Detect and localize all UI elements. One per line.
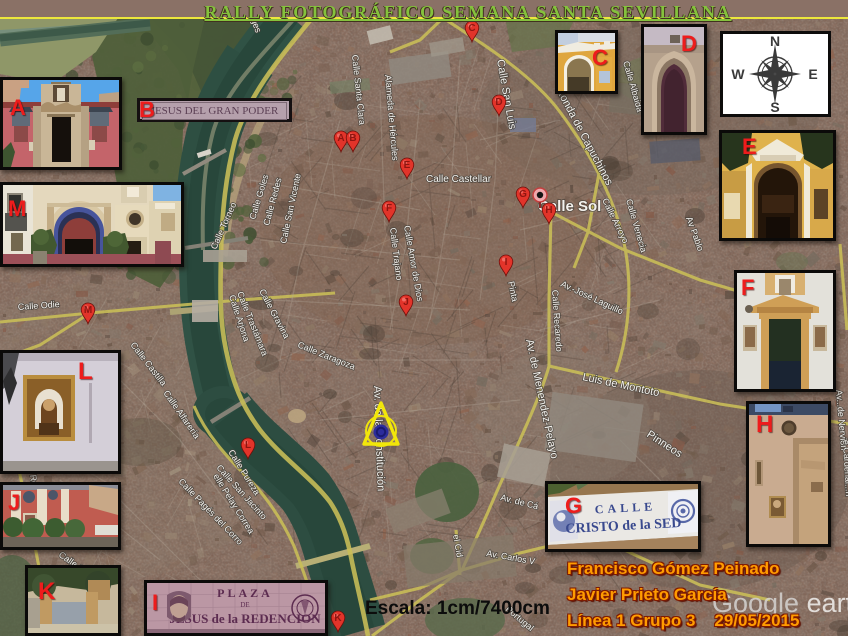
svg-text:E: E bbox=[404, 160, 411, 171]
svg-text:W: W bbox=[731, 66, 745, 82]
svg-text:DE: DE bbox=[240, 601, 249, 609]
svg-text:G: G bbox=[519, 189, 527, 200]
svg-text:PLAZA: PLAZA bbox=[217, 586, 273, 600]
svg-text:C: C bbox=[468, 23, 475, 34]
svg-text:L: L bbox=[245, 440, 251, 451]
svg-text:D: D bbox=[495, 97, 502, 108]
svg-text:M: M bbox=[84, 305, 92, 316]
svg-text:A: A bbox=[337, 133, 344, 144]
svg-text:S: S bbox=[770, 99, 779, 114]
svg-text:H: H bbox=[545, 205, 552, 216]
svg-text:F: F bbox=[386, 203, 392, 214]
svg-text:N: N bbox=[770, 34, 780, 49]
svg-text:Calle Castellar: Calle Castellar bbox=[426, 174, 492, 185]
svg-text:E: E bbox=[808, 66, 817, 82]
svg-text:K: K bbox=[334, 613, 342, 624]
svg-text:I: I bbox=[505, 257, 508, 268]
svg-text:B: B bbox=[349, 133, 356, 144]
svg-text:J: J bbox=[403, 297, 409, 308]
